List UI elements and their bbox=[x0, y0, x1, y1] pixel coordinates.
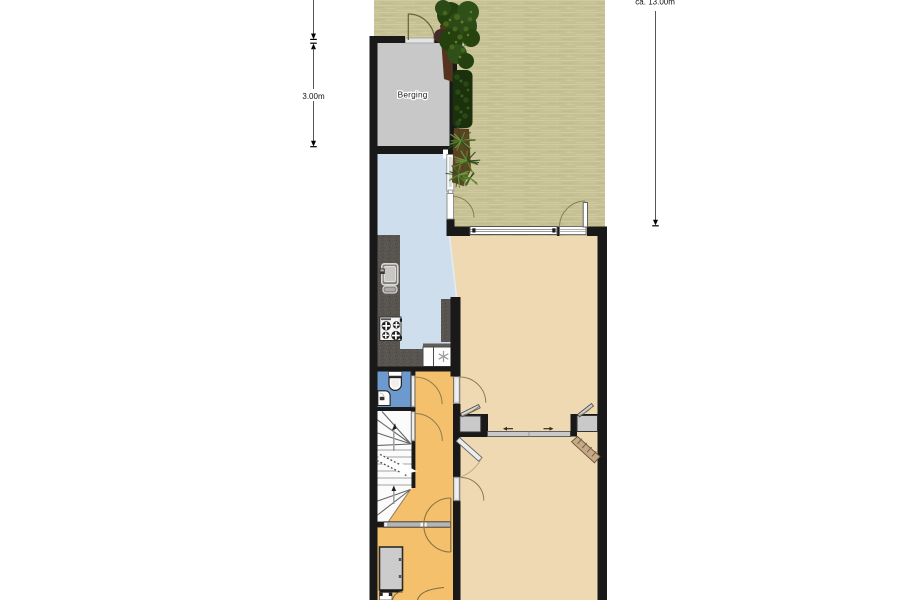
svg-text:ca. 13.00m: ca. 13.00m bbox=[635, 0, 675, 7]
svg-text:Berging: Berging bbox=[398, 89, 428, 99]
svg-text:3.00m: 3.00m bbox=[302, 92, 325, 101]
